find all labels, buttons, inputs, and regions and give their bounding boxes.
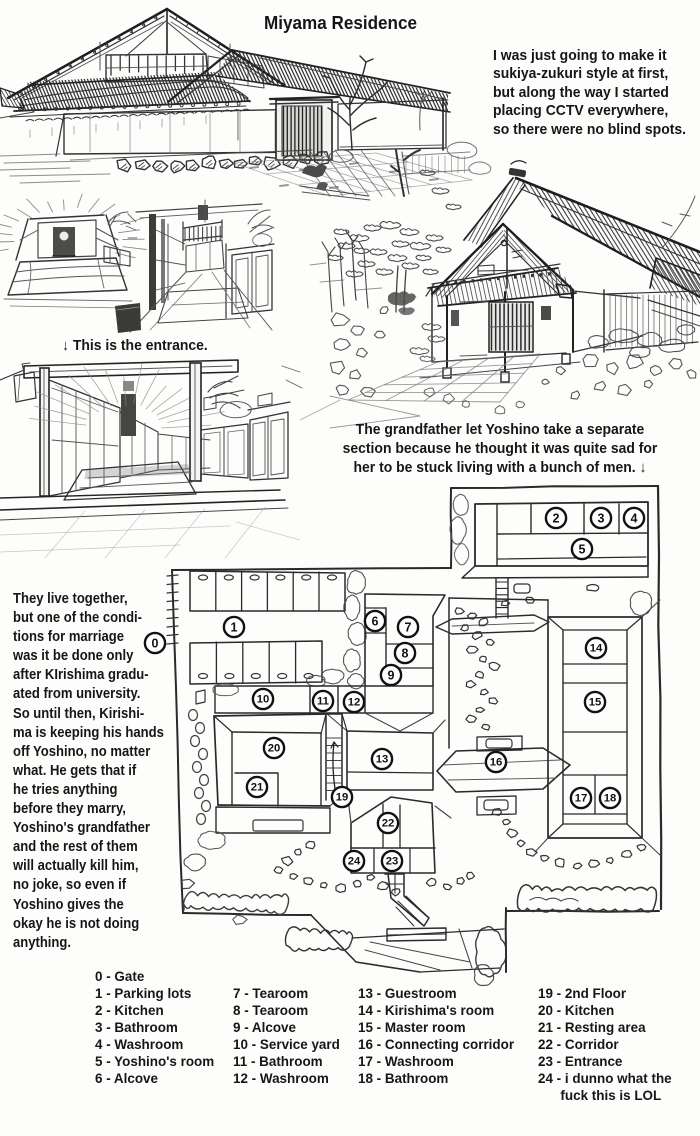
svg-text:8: 8	[402, 647, 409, 661]
svg-text:12: 12	[348, 697, 361, 709]
svg-text:18: 18	[604, 793, 617, 805]
svg-text:4: 4	[631, 512, 638, 526]
svg-text:2: 2	[553, 512, 560, 526]
svg-text:17: 17	[575, 793, 588, 805]
svg-text:11: 11	[317, 696, 329, 708]
svg-text:1: 1	[231, 621, 238, 635]
svg-text:16: 16	[490, 757, 503, 769]
svg-text:5: 5	[579, 543, 586, 557]
svg-text:15: 15	[589, 697, 602, 709]
svg-text:9: 9	[388, 669, 395, 683]
svg-text:7: 7	[405, 621, 412, 635]
svg-text:3: 3	[598, 512, 605, 526]
svg-text:23: 23	[386, 856, 399, 868]
svg-text:21: 21	[251, 782, 264, 794]
svg-text:20: 20	[268, 743, 281, 755]
svg-text:22: 22	[382, 818, 395, 830]
svg-text:13: 13	[376, 754, 389, 766]
svg-text:14: 14	[590, 643, 603, 655]
svg-text:24: 24	[348, 856, 361, 868]
svg-text:6: 6	[372, 615, 379, 629]
svg-text:10: 10	[257, 694, 270, 706]
svg-text:19: 19	[336, 792, 349, 804]
